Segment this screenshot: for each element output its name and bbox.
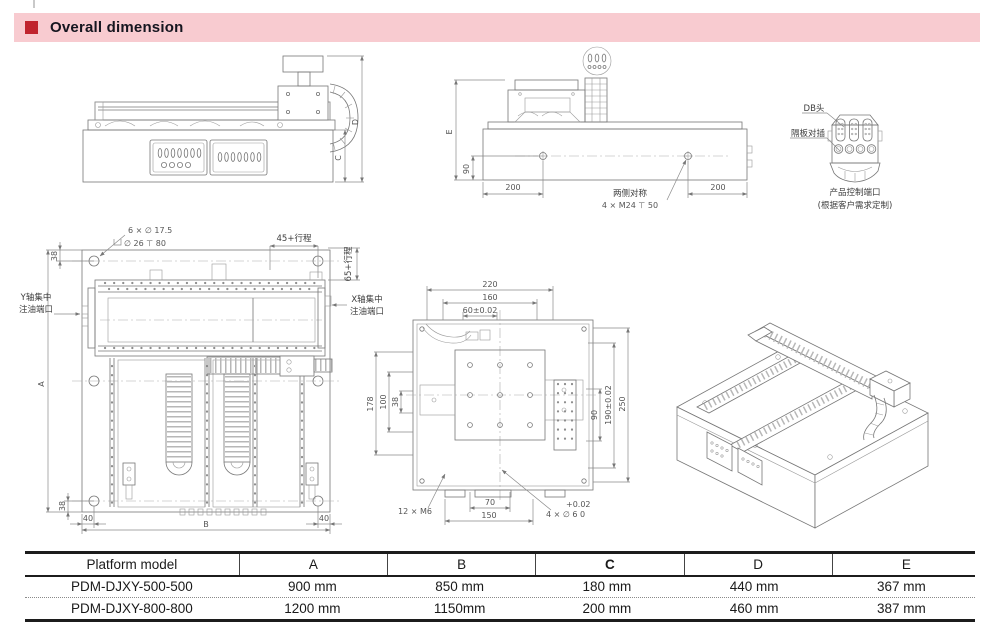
value-b: 1150mm (386, 598, 533, 619)
port-caption-2: (根据客户需求定制) (818, 200, 893, 211)
page-edge-mark (33, 0, 35, 8)
y-stroke-dim-label: 65+行程 (343, 246, 354, 281)
dim-200-left-label: 200 (505, 183, 520, 192)
dimension-table: Platform model A B C D E PDM-DJXY-500-50… (25, 551, 975, 622)
dim-c-label: C (334, 155, 343, 161)
counterbore-icon (114, 239, 121, 245)
db-connector-icons (836, 119, 872, 141)
dim-178-label: 178 (366, 396, 375, 411)
value-c: 200 mm (533, 598, 680, 619)
db-connector-icons (158, 149, 201, 168)
end-view-drawing: E 90 200 200 两侧对称 4 × M24 ⊤ 50 (430, 50, 760, 215)
header-c: C (535, 554, 683, 575)
isometric-view-drawing (660, 295, 995, 535)
dim-38-top-label: 38 (50, 251, 59, 261)
header-d: D (684, 554, 832, 575)
dim-d-label: D (351, 119, 360, 125)
dim-190-label: 190±0.02 (604, 385, 613, 425)
dim-40-left-label: 40 (83, 514, 93, 523)
holes-note: 4 × M24 ⊤ 50 (602, 201, 658, 210)
value-b: 850 mm (386, 577, 533, 598)
dim-160-label: 160 (482, 293, 497, 302)
value-a: 1200 mm (239, 598, 386, 619)
round-connector-icons (834, 145, 876, 154)
y-oil-label-2: 注油端口 (19, 304, 53, 315)
dim-200-right-label: 200 (710, 183, 725, 192)
db-connector-icons-2 (218, 153, 261, 162)
section-bullet-icon (25, 21, 38, 34)
header-b: B (387, 554, 535, 575)
dim-a-label: A (37, 381, 46, 387)
datasheet-page: { "header": { "title": "Overall dimensio… (0, 0, 997, 637)
m6-callout: 12 × M6 (398, 507, 432, 516)
table-row: PDM-DJXY-500-500 900 mm 850 mm 180 mm 44… (25, 577, 975, 599)
header-a: A (239, 554, 387, 575)
header-e: E (832, 554, 980, 575)
plate-view-drawing: 220 160 60±0.02 178 100 38 90 190±0.02 2… (368, 250, 658, 550)
model-name: PDM-DJXY-800-800 (25, 598, 239, 619)
partition-label: 隔板对插 (791, 128, 826, 139)
value-a: 900 mm (239, 577, 386, 598)
dim-38-bottom-label: 38 (58, 501, 67, 511)
dim-38-label: 38 (391, 397, 400, 407)
plan-view-drawing: A B 40 40 38 38 6 × ∅ 17.5 ∅ 26 ⊤ 80 45+… (10, 218, 392, 553)
hole-callout: 6 × ∅ 17.5 (128, 226, 172, 235)
value-e: 387 mm (828, 598, 975, 619)
value-d: 460 mm (681, 598, 828, 619)
dim-100-label: 100 (379, 394, 388, 409)
dim-220-label: 220 (482, 280, 497, 289)
header-platform-model: Platform model (25, 554, 239, 575)
hole-callout: 4 × ∅ 6 0 (546, 510, 585, 519)
dim-90-label: 90 (462, 164, 471, 174)
dim-90-label: 90 (590, 410, 599, 420)
table-row: PDM-DJXY-800-800 1200 mm 1150mm 200 mm 4… (25, 598, 975, 619)
value-d: 440 mm (681, 577, 828, 598)
y-oil-label-1: Y轴集中 (20, 292, 52, 303)
dim-e-label: E (445, 129, 454, 134)
dim-150-label: 150 (481, 511, 496, 520)
value-e: 367 mm (828, 577, 975, 598)
dim-40-right-label: 40 (319, 514, 329, 523)
dim-70-label: 70 (485, 498, 495, 507)
mounting-hole (538, 151, 548, 161)
dim-60-label: 60±0.02 (463, 306, 498, 315)
symmetry-note: 两侧对称 (613, 188, 648, 199)
x-stroke-dim-label: 45+行程 (277, 233, 312, 244)
hole-tol-callout: +0.02 (566, 500, 591, 509)
port-caption-1: 产品控制端口 (829, 187, 880, 198)
dim-250-label: 250 (618, 396, 627, 411)
table-header-row: Platform model A B C D E (25, 554, 975, 577)
dim-b-label: B (203, 520, 209, 529)
mounting-hole (683, 151, 693, 161)
counterbore-callout: ∅ 26 ⊤ 80 (124, 239, 166, 248)
db-head-label: DB头 (804, 103, 825, 114)
connector-detail-drawing: DB头 隔板对插 产品控制端口 (根据客户需求定制) (770, 75, 995, 220)
value-c: 180 mm (533, 577, 680, 598)
section-header: Overall dimension (14, 13, 980, 42)
model-name: PDM-DJXY-500-500 (25, 577, 239, 598)
section-title: Overall dimension (50, 19, 183, 36)
side-view-drawing: D C (40, 46, 380, 214)
